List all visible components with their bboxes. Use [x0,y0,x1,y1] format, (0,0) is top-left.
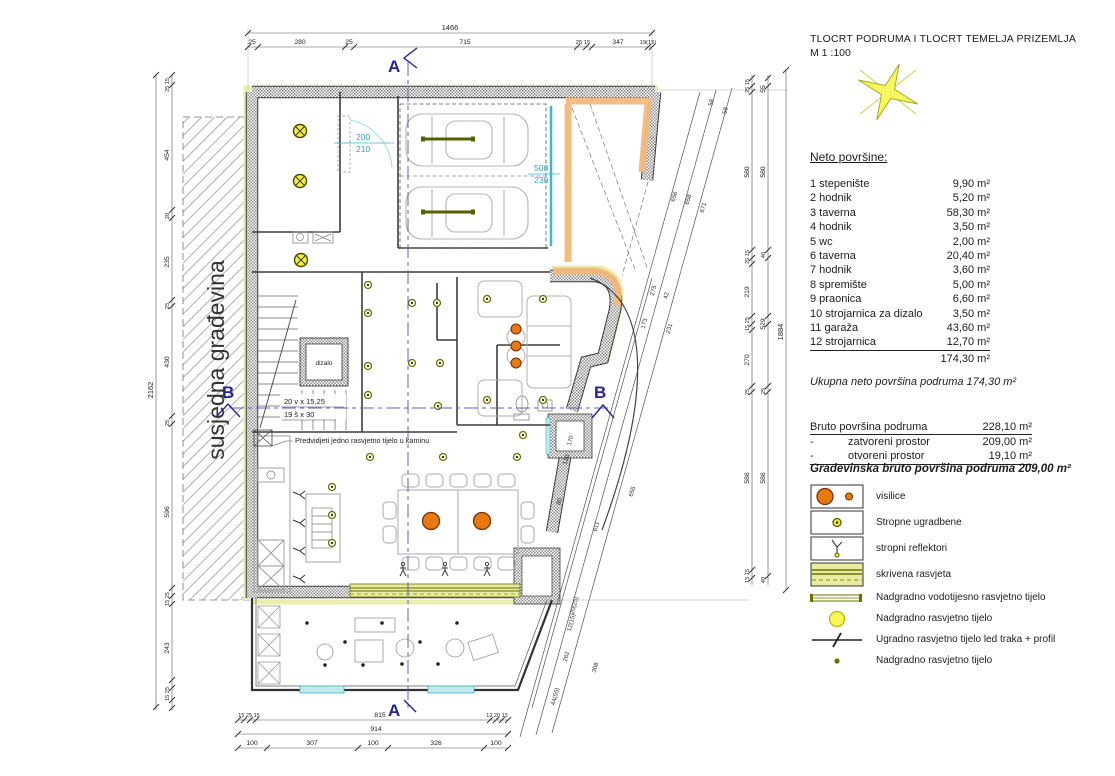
svg-text:20: 20 [165,213,171,219]
elevator-label: dizalo [316,360,333,367]
garage-door-height: 230 [534,175,548,185]
svg-text:44(55): 44(55) [550,687,561,706]
room-area-table: 1 stepenište9,90 m² 2 hodnik5,20 m² 3 ta… [810,177,990,367]
svg-text:100: 100 [490,740,502,747]
svg-text:580: 580 [744,166,751,178]
sheet-scale: M 1 :100 [810,47,851,59]
table-row: 4 hodnik3,50 m² [810,220,990,234]
svg-text:430: 430 [164,356,171,368]
table-row: 10 strojarnica za dizalo3,50 m² [810,307,990,321]
svg-text:280: 280 [294,39,306,46]
section-b-right: B [594,383,606,402]
svg-text:656: 656 [670,190,680,202]
fireplace-note-text: Predvidjeti jedno rasvjetno tijelo u kam… [295,436,429,445]
garage [400,104,551,248]
legend-item: visilice [810,483,1110,509]
legend-item: skrivena rasvjeta [810,561,1110,587]
svg-text:347: 347 [612,39,624,46]
table-row: 9 praonica6,60 m² [810,292,990,306]
door-height: 210 [356,144,370,154]
svg-text:25 15: 25 15 [165,78,171,92]
svg-text:235: 235 [164,256,171,268]
table-row: Bruto površina podruma228,10 m² [810,420,1032,435]
surface-watertight-luminaire-icon [810,590,868,606]
surface-luminaire-small-icon [810,654,868,668]
svg-text:12(15): 12(15) [566,613,577,632]
elevator: dizalo [300,338,348,386]
stairs-note: 20 v x 15,25 19 š x 30 [280,394,346,420]
door-annotation-200-210: 200 210 [334,116,394,172]
svg-text:15 25: 15 25 [165,687,171,701]
watertight-lights [294,125,308,267]
pendant-lights-icon [810,484,868,509]
svg-text:529: 529 [760,318,767,330]
hidden-lighting-icon [810,562,868,587]
svg-text:580: 580 [760,166,767,178]
table-row: 11 garaža43,60 m² [810,321,990,335]
svg-text:19(15): 19(15) [640,40,657,46]
table-row: 2 hodnik5,20 m² [810,191,990,205]
recessed-ceiling-light-icon [810,510,868,535]
svg-text:586: 586 [744,472,751,484]
svg-text:25: 25 [248,39,256,46]
garage-door-width: 500 [534,163,548,173]
svg-text:658: 658 [684,193,694,205]
net-area-total: 174,30 m² [810,351,990,367]
door-width: 200 [356,132,370,142]
svg-text:454: 454 [164,149,171,161]
garage-light-bars [421,137,475,215]
svg-text:15 15: 15 15 [745,569,751,583]
svg-text:25: 25 [345,39,353,46]
legend-item: Stropne ugradbene [810,509,1110,535]
svg-text:671: 671 [699,201,709,213]
svg-text:25: 25 [165,303,171,309]
svg-text:58: 58 [721,106,730,115]
svg-text:231: 231 [665,322,675,334]
svg-text:308: 308 [591,661,601,673]
ceiling-spotlight-icon [810,536,868,561]
gross-area-final: Građevinska bruto površina podruma 209,0… [810,463,1115,475]
net-area-summary: Ukupna neto površina podruma 174,30 m² [810,376,1110,388]
gross-area-table: Bruto površina podruma228,10 m² -zatvore… [810,420,1032,465]
svg-text:42: 42 [662,291,671,300]
table-row: 1 stepenište9,90 m² [810,177,990,191]
floor-plan: susjedna građevina 170 [0,0,800,776]
svg-text:100: 100 [246,740,258,747]
kitchen [254,436,340,592]
svg-text:275: 275 [649,284,659,296]
table-row: 3 taverna58,30 m² [810,206,990,220]
legend-item: Ugradno rasvjetno tijelo led traka + pro… [810,629,1110,650]
stairs-risers: 20 v x 15,25 [284,397,325,406]
legend-item: stropni reflektori [810,535,1110,561]
table-row: 7 hodnik3,60 m² [810,263,990,277]
svg-text:1884: 1884 [776,324,785,341]
terrace-lights [305,621,459,667]
svg-text:655: 655 [628,485,638,497]
svg-text:40: 40 [761,577,767,583]
kitchen-spotlights [293,491,305,583]
sheet-title: TLOCRT PODRUMA I TLOCRT TEMELJA PRIZEMLJ… [810,33,1110,45]
svg-text:25 15: 25 15 [745,250,751,264]
svg-text:307: 307 [306,740,318,747]
section-b-left: B [222,383,234,402]
svg-text:25 15: 25 15 [745,79,751,93]
legend: visilice Stropne ugradbene stropni refle… [810,483,1110,671]
svg-text:586: 586 [760,472,767,484]
terrace [252,598,552,693]
recessed-led-strip-icon [810,631,868,649]
svg-text:326: 326 [430,740,442,747]
svg-text:611: 611 [592,520,601,532]
svg-text:173: 173 [640,317,650,329]
cad-sheet: { "header": { "title": "TLOCRT PODRUMA I… [0,0,1115,776]
svg-text:914: 914 [370,726,382,733]
svg-text:596: 596 [164,506,171,518]
svg-text:20(25): 20(25) [569,596,580,615]
legend-item: Nadgradno vodotijesno rasvjetno tijelo [810,587,1110,608]
svg-text:25: 25 [745,389,751,395]
neighbor-label: susjedna građevina [203,260,229,460]
table-row: 5 wc2,00 m² [810,235,990,249]
svg-text:40: 40 [761,252,767,258]
section-a-bottom: A [388,701,400,720]
svg-text:262: 262 [562,650,572,662]
svg-text:55: 55 [760,85,767,93]
svg-text:100: 100 [367,740,379,747]
svg-text:15 25: 15 25 [745,317,751,331]
surface-luminaire-large-icon [810,610,868,628]
svg-text:270: 270 [744,354,751,366]
reflector-symbols [400,562,490,576]
net-areas-heading: Neto površine: [810,150,887,164]
living-room-furniture [478,281,571,416]
svg-text:25: 25 [761,388,767,394]
north-star-icon [848,60,928,126]
living-pendant-lights [511,324,521,368]
legend-item: Nadgradno rasvjetno tijelo [810,650,1110,671]
table-row: 8 spremište5,00 m² [810,278,990,292]
svg-text:715: 715 [459,39,471,46]
section-a-top: A [388,57,400,76]
table-row: 12 strojarnica12,70 m² [810,335,990,350]
neighbor-building: susjedna građevina [183,117,250,600]
dining-pendant-lights [423,513,491,530]
dining-furniture [383,474,534,570]
table-row: 6 taverna20,40 m² [810,249,990,263]
legend-item: Nadgradno rasvjetno tijelo [810,608,1110,629]
svg-text:25 15: 25 15 [576,40,591,46]
svg-text:58: 58 [707,98,716,107]
svg-text:1466: 1466 [442,23,459,32]
garage-door-annotation: 500 230 [528,163,560,185]
hidden-lighting-band [350,584,520,597]
svg-text:12 20 13: 12 20 13 [486,713,507,719]
table-row: -zatvoreni prostor209,00 m² [810,435,1032,449]
stairs-treads: 19 š x 30 [284,410,314,419]
svg-text:15 25: 15 25 [165,592,171,606]
svg-text:15 25 15: 15 25 15 [238,713,259,719]
svg-text:815: 815 [374,712,386,719]
svg-text:2162: 2162 [146,382,155,399]
svg-text:25: 25 [165,420,171,426]
svg-text:219: 219 [744,286,751,298]
svg-text:243: 243 [164,642,171,654]
